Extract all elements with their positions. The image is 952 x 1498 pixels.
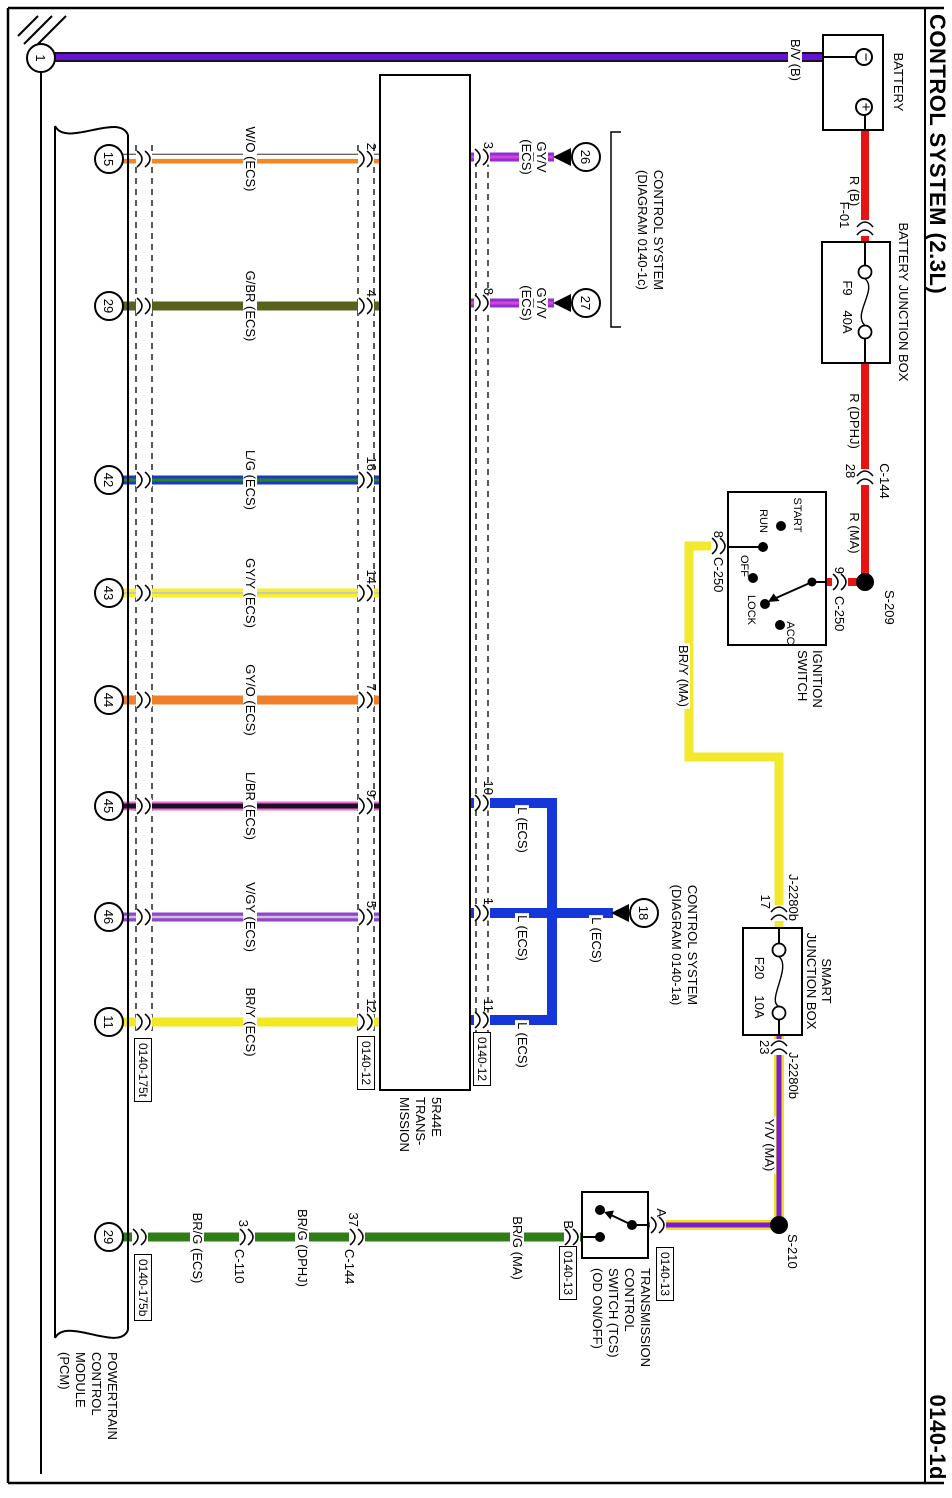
connector-c110-name: C-110 bbox=[232, 1249, 246, 1283]
pcm-label-4: (PCM) bbox=[57, 1352, 71, 1390]
wire-label-l-ecs-3: L (ECS) bbox=[515, 1020, 529, 1070]
wire-label-brg-ma: BR/G (MA) bbox=[510, 1214, 524, 1282]
tcs-pin-b: B bbox=[561, 1220, 575, 1229]
ignition-entry-pin: 9 bbox=[832, 567, 846, 574]
sjb-entry-connector: J-2280b bbox=[786, 874, 800, 921]
wire-label-bry-ecs: BR/Y (ECS) bbox=[243, 985, 257, 1058]
ignition-pos-run: RUN bbox=[756, 509, 768, 533]
tcs-ref-a: 0140-13 bbox=[656, 1247, 674, 1301]
splice-s210: S-210 bbox=[785, 1234, 799, 1269]
pcm-pin-46: 46 bbox=[94, 902, 124, 932]
ignition-exit-pin: 8 bbox=[711, 531, 725, 538]
connector-c110-pin: 3 bbox=[236, 1220, 250, 1227]
ignition-pos-start: START bbox=[790, 497, 802, 532]
tcs-label-3: SWITCH (TCS) bbox=[606, 1268, 620, 1358]
offpage-ref-27: 27 bbox=[571, 288, 601, 318]
wire-label-gyv1-2: (ECS) bbox=[519, 137, 533, 176]
pcm-pin-43: 43 bbox=[94, 578, 124, 608]
ref-1a-line2: (DIAGRAM 0140-1a) bbox=[669, 885, 683, 1006]
tcs-pin-a: A bbox=[654, 1208, 668, 1217]
pcm-ref-175t: 0140-175t bbox=[134, 1038, 152, 1102]
pcm-pin-11: 11 bbox=[94, 1007, 124, 1037]
trans-pin-2: 2 bbox=[364, 143, 378, 150]
trans-pin-1: 1 bbox=[481, 898, 495, 905]
splice-s209: S-209 bbox=[882, 590, 896, 625]
tcs-ref-b: 0140-13 bbox=[559, 1246, 577, 1300]
wire-label-yv-ma: Y/V (MA) bbox=[762, 1117, 776, 1174]
battery-negative-terminal: − bbox=[857, 53, 873, 62]
ignition-exit-connector: C-250 bbox=[711, 557, 725, 592]
ignition-pos-lock: LOCK bbox=[744, 595, 756, 625]
wire-label-brg-ecs: BR/G (ECS) bbox=[190, 1211, 204, 1286]
wire-label-l-ecs-4: L (ECS) bbox=[589, 915, 603, 965]
tcs-label-2: CONTROL bbox=[622, 1268, 636, 1332]
wiring-diagram-page: CONTROL SYSTEM (2.3L) 0140-1d 1 BATTERY … bbox=[0, 0, 952, 1498]
ref-1c-line1: CONTROL SYSTEM bbox=[651, 170, 665, 290]
trans-pin-14: 14 bbox=[364, 570, 378, 584]
offpage-ref-18: 18 bbox=[629, 898, 659, 928]
connector-f01: F-01 bbox=[837, 202, 851, 229]
wire-label-r-dphj: R (DPHJ) bbox=[847, 391, 861, 451]
ignition-pos-off: OFF bbox=[737, 555, 749, 577]
transmission-label-2: TRANS- bbox=[413, 1097, 427, 1145]
wire-label-gyv2-1: GY/V bbox=[534, 285, 548, 320]
sjb-exit-pin: 23 bbox=[757, 1040, 771, 1054]
trans-pin-8: 8 bbox=[481, 288, 495, 295]
fuse-f9-rating: 40A bbox=[840, 310, 854, 333]
transmission-ref-12-bottom: 0140-12 bbox=[357, 1036, 375, 1090]
connector-c144-pin: 28 bbox=[843, 464, 857, 478]
sjb-label-1: SMART bbox=[819, 958, 833, 1003]
pcm-pin-29: 29 bbox=[94, 291, 124, 321]
wire-label-gyv1-1: GY/V bbox=[534, 139, 548, 174]
wire-label-gbr-ecs: G/BR (ECS) bbox=[243, 269, 257, 344]
wire-label-lg-ecs: L/G (ECS) bbox=[243, 448, 257, 512]
pcm-ref-175b: 0140-175b bbox=[134, 1254, 152, 1321]
battery-label: BATTERY bbox=[891, 53, 905, 112]
wire-label-gyy-ecs: GY/Y (ECS) bbox=[243, 556, 257, 630]
wire-label-vgy-ecs: V/GY (ECS) bbox=[243, 880, 257, 954]
rotated-landscape-canvas: CONTROL SYSTEM (2.3L) 0140-1d 1 BATTERY … bbox=[0, 0, 952, 1498]
transmission-label-3: MISSION bbox=[397, 1097, 411, 1152]
wire-label-bv-b: B/V (B) bbox=[788, 37, 802, 83]
page-title: CONTROL SYSTEM (2.3L) bbox=[926, 14, 949, 294]
tcs-label-1: TRANSMISSION bbox=[638, 1268, 652, 1367]
pcm-label-3: MODULE bbox=[73, 1352, 87, 1408]
wire-label-wo-ecs: W/O (ECS) bbox=[243, 125, 257, 194]
wire-label-bry-ma: BR/Y (MA) bbox=[676, 643, 690, 709]
ignition-switch-label-2: SWITCH bbox=[795, 650, 809, 701]
connector-c144-name: C-144 bbox=[877, 463, 891, 498]
page-code: 0140-1d bbox=[926, 1395, 949, 1480]
connector-c144b-name: C-144 bbox=[342, 1249, 356, 1284]
sjb-label-2: JUNCTION BOX bbox=[804, 933, 818, 1030]
trans-pin-3: 3 bbox=[481, 142, 495, 149]
ref-1c-line2: (DIAGRAM 0140-1c) bbox=[635, 170, 649, 290]
trans-pin-5: 5 bbox=[364, 901, 378, 908]
trans-pin-10: 10 bbox=[481, 781, 495, 795]
ignition-entry-connector: C-250 bbox=[832, 596, 846, 631]
wire-label-gyo-ecs: GY/O (ECS) bbox=[243, 662, 257, 738]
ground-ref-circle: 1 bbox=[26, 43, 56, 73]
wire-label-brg-dphj: BR/G (DPHJ) bbox=[295, 1207, 309, 1289]
pcm-label-1: POWERTRAIN bbox=[105, 1352, 119, 1440]
tcs-label-4: (OD ON/OFF) bbox=[590, 1268, 604, 1349]
ref-1a-line1: CONTROL SYSTEM bbox=[685, 885, 699, 1005]
battery-junction-box-label: BATTERY JUNCTION BOX bbox=[896, 223, 910, 382]
pcm-pin-15: 15 bbox=[94, 144, 124, 174]
fuse-f9: F9 bbox=[840, 280, 854, 295]
wire-label-lbr-ecs: L/BR (ECS) bbox=[243, 770, 257, 842]
trans-pin-12: 12 bbox=[364, 999, 378, 1013]
ignition-switch-label-1: IGNITION bbox=[810, 650, 824, 708]
sjb-exit-connector: J-2280b bbox=[786, 1052, 800, 1099]
trans-pin-16: 16 bbox=[364, 457, 378, 471]
pcm-pin-42: 42 bbox=[94, 465, 124, 495]
connector-c144b-pin: 37 bbox=[346, 1213, 360, 1227]
trans-pin-11: 11 bbox=[481, 999, 495, 1013]
wire-label-r-ma: R (MA) bbox=[847, 510, 861, 555]
battery-positive-terminal: + bbox=[857, 103, 873, 112]
pcm-pin-29b: 29 bbox=[94, 1222, 124, 1252]
transmission-label-1: 5R44E bbox=[429, 1097, 443, 1137]
wire-label-l-ecs-2: L (ECS) bbox=[515, 913, 529, 963]
pcm-pin-45: 45 bbox=[94, 791, 124, 821]
offpage-ref-26: 26 bbox=[571, 142, 601, 172]
trans-pin-4: 4 bbox=[364, 290, 378, 297]
transmission-ref-12-top: 0140-12 bbox=[473, 1032, 491, 1086]
pcm-label-2: CONTROL bbox=[89, 1352, 103, 1416]
wire-label-gyv2-2: (ECS) bbox=[519, 283, 533, 322]
wire-label-l-ecs-1: L (ECS) bbox=[515, 805, 529, 855]
sjb-entry-pin: 17 bbox=[758, 895, 772, 909]
fuse-f20: F20 bbox=[752, 957, 766, 979]
fuse-f20-rating: 10A bbox=[752, 995, 766, 1018]
trans-pin-7: 7 bbox=[364, 684, 378, 691]
pcm-pin-44: 44 bbox=[94, 685, 124, 715]
trans-pin-9: 9 bbox=[364, 790, 378, 797]
ignition-pos-acc: ACC bbox=[783, 621, 795, 644]
